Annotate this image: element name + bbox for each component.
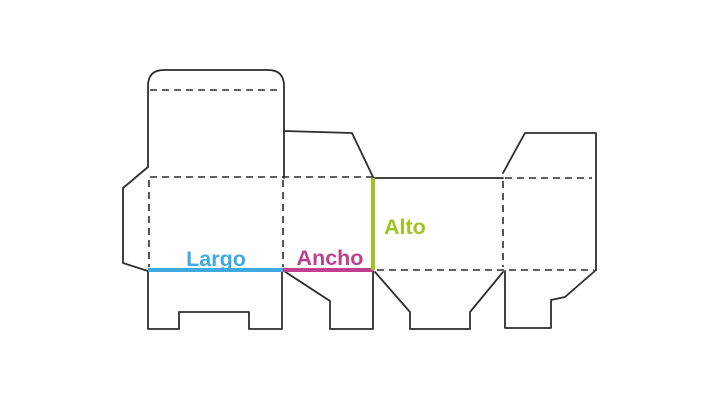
lid-tuck-flap-outline bbox=[148, 70, 284, 178]
bottom-flap-front-outline bbox=[148, 271, 282, 329]
alto-label: Alto bbox=[384, 215, 426, 239]
ancho-label: Ancho bbox=[297, 246, 364, 270]
largo-label: Largo bbox=[186, 247, 246, 271]
top-dust-flap-middle-outline bbox=[284, 131, 373, 177]
box-dieline-diagram: Largo Ancho Alto bbox=[0, 0, 720, 400]
bottom-flap-right-outline bbox=[505, 270, 596, 328]
bottom-flap-width-outline bbox=[284, 271, 373, 329]
top-dust-flap-right-outline bbox=[503, 133, 596, 270]
dieline-canvas: Largo Ancho Alto bbox=[0, 0, 720, 400]
cut-lines bbox=[123, 70, 596, 329]
glue-flap-left-outline bbox=[123, 167, 148, 271]
bottom-flap-back-outline bbox=[375, 272, 503, 329]
